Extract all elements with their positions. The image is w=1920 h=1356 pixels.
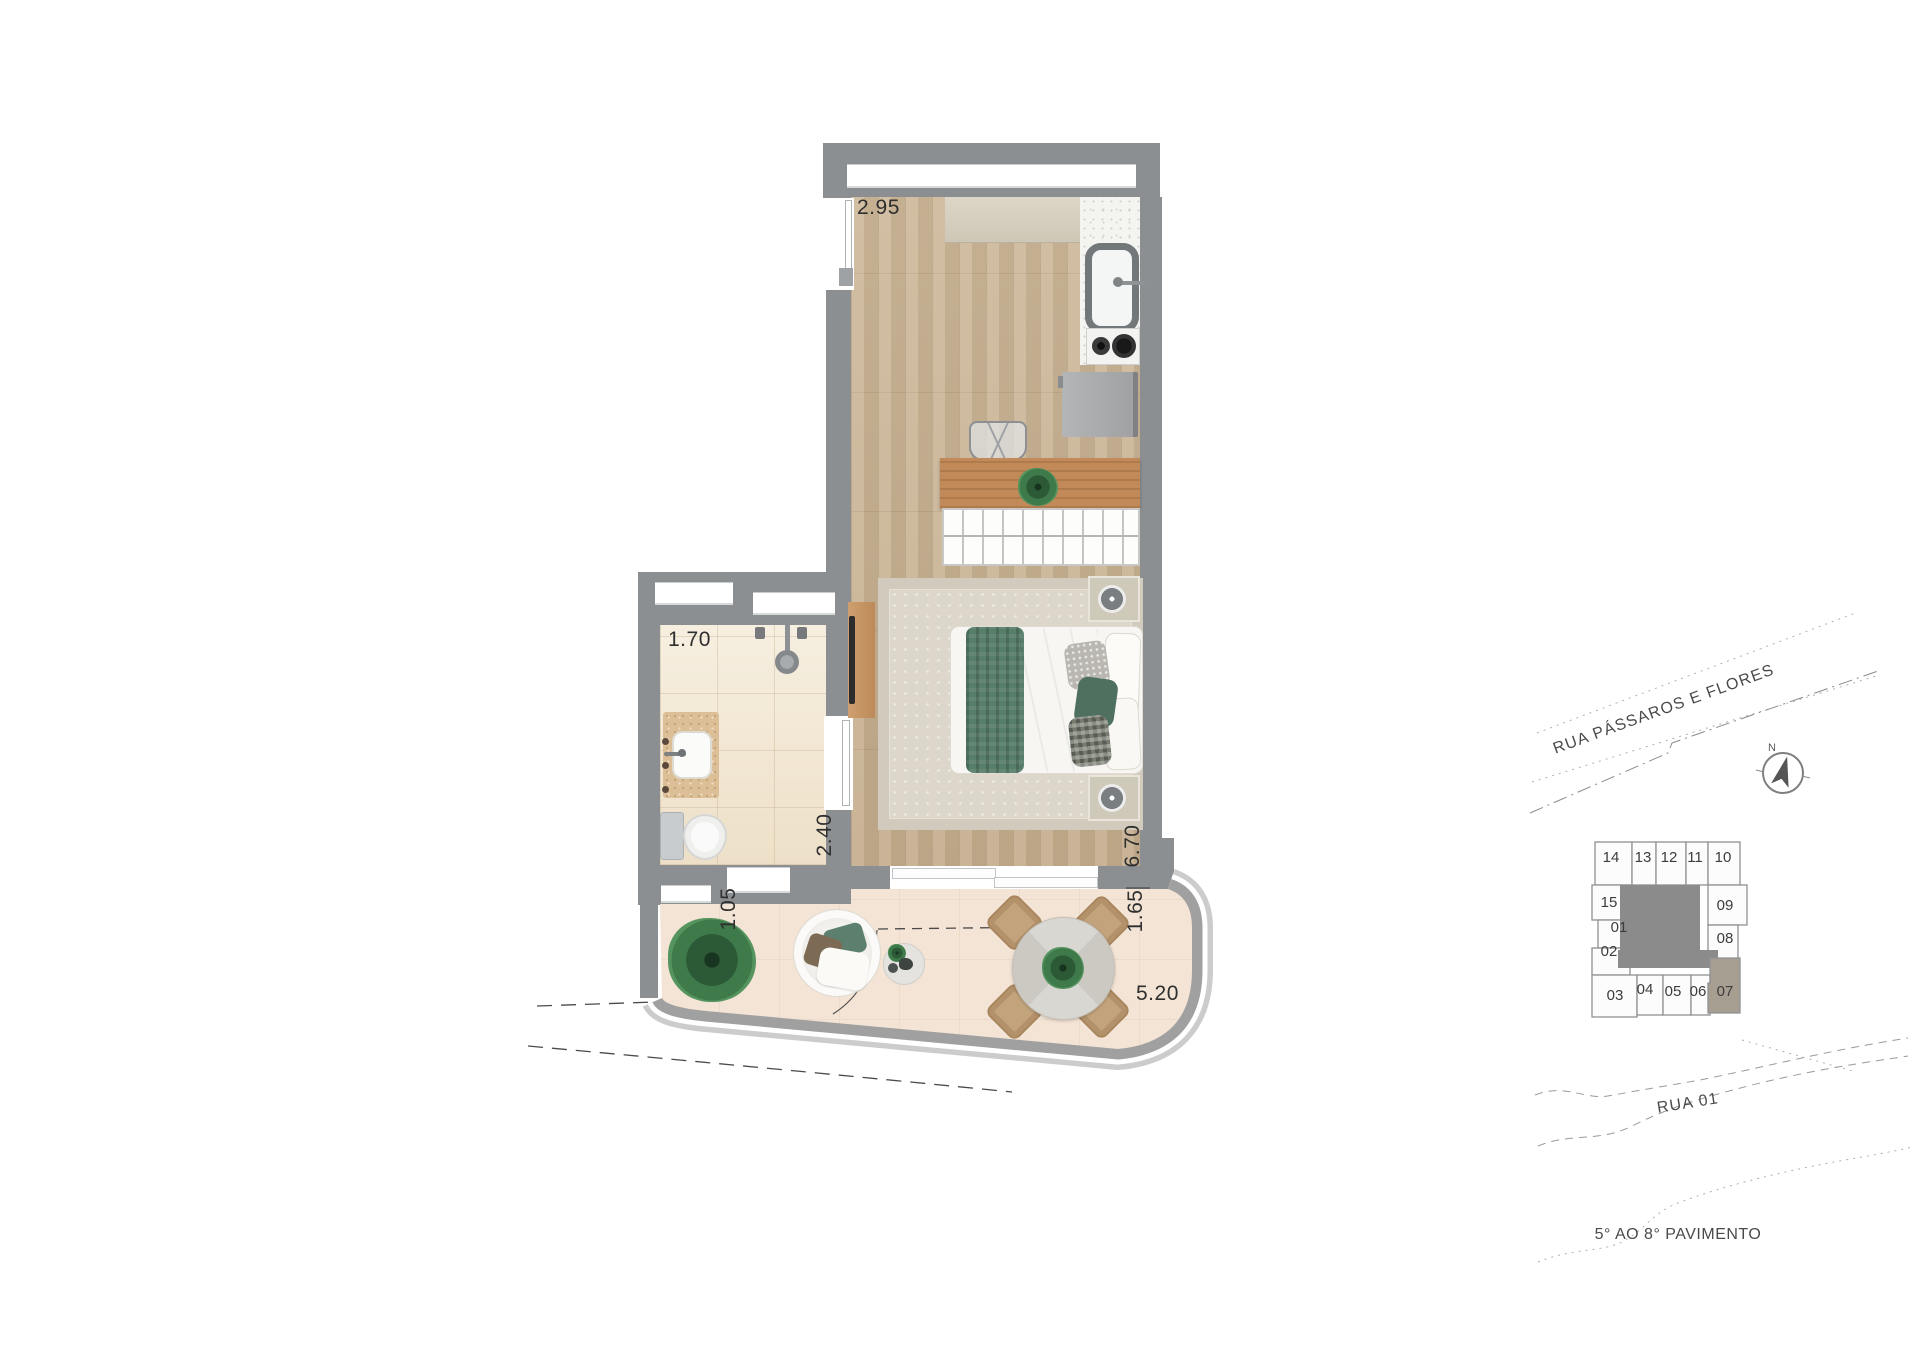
bed-green-throw bbox=[966, 627, 1024, 773]
balcony-slider-pane-1 bbox=[892, 868, 996, 879]
wall-left-mid bbox=[826, 288, 851, 575]
dim-balcony-depth-right: 1.65 bbox=[1125, 884, 1147, 938]
lamp-bottom bbox=[1098, 784, 1126, 812]
keyplan-core bbox=[1620, 885, 1700, 953]
stove-burner-large bbox=[1112, 334, 1136, 358]
fridge-handle bbox=[1058, 376, 1063, 388]
keyplan-unit-13: 13 bbox=[1630, 849, 1656, 865]
desk-plant bbox=[1018, 468, 1058, 506]
tv-screen bbox=[849, 616, 855, 704]
north-arrow-icon bbox=[1771, 754, 1796, 787]
floor-range-label: 5° AO 8° PAVIMENTO bbox=[1588, 1226, 1768, 1244]
dim-balcony-width: 5.20 bbox=[1136, 982, 1179, 1006]
bath-faucet-knob bbox=[678, 749, 686, 757]
side-table-tray bbox=[899, 958, 913, 970]
street-name-upper: RUA PÁSSAROS E FLORES bbox=[1539, 657, 1789, 763]
wall-balcony-left bbox=[640, 890, 658, 998]
shower-control-left bbox=[755, 627, 765, 639]
keyplan-unit-06: 06 bbox=[1685, 983, 1711, 999]
window-bath-2 bbox=[753, 592, 835, 615]
keyplan-unit-09: 09 bbox=[1712, 897, 1738, 913]
bath-door-leaf bbox=[842, 720, 850, 806]
keyplan-unit-08: 08 bbox=[1712, 930, 1738, 946]
keyplan-unit-01: 01 bbox=[1606, 919, 1632, 935]
vanity-knob-1 bbox=[662, 738, 669, 745]
street-name-lower: RUA 01 bbox=[1647, 1089, 1729, 1119]
street-lines-upper bbox=[1530, 612, 1878, 813]
keyplan-core-band bbox=[1618, 950, 1718, 968]
keyplan-unit-14: 14 bbox=[1598, 849, 1624, 865]
keyplan-unit-15: 15 bbox=[1596, 894, 1622, 910]
dim-bathroom-width: 1.70 bbox=[668, 628, 711, 652]
keyplan-unit-10: 10 bbox=[1710, 849, 1736, 865]
shower-head bbox=[775, 650, 799, 674]
fridge bbox=[1062, 372, 1138, 437]
floorplan-canvas: 2.95 1.70 2.40 6.70 1.65 1.05 5.20 RUA P… bbox=[0, 0, 1920, 1356]
keyplan-unit-07: 07 bbox=[1712, 983, 1738, 999]
balcony-slider-pane-2 bbox=[994, 877, 1098, 888]
bed-pillow-checker bbox=[1067, 714, 1112, 768]
entry-door-hinge bbox=[839, 268, 853, 286]
keyplan-unit-12: 12 bbox=[1656, 849, 1682, 865]
vanity-knob-2 bbox=[662, 762, 669, 769]
stove-burner-small bbox=[1092, 337, 1110, 355]
compass bbox=[1756, 753, 1810, 793]
compass-north-label: N bbox=[1768, 742, 1776, 754]
toilet-tank bbox=[660, 812, 684, 860]
window-top-strip bbox=[847, 164, 1136, 188]
desk-chair bbox=[969, 421, 1027, 461]
shower-control-right bbox=[797, 627, 807, 639]
keyplan-unit-05: 05 bbox=[1660, 983, 1686, 999]
kitchen-sink bbox=[1085, 243, 1139, 333]
keyplan-unit-03: 03 bbox=[1602, 987, 1628, 1003]
entry-door-leaf bbox=[845, 200, 852, 272]
dining-table-plant bbox=[1042, 947, 1084, 989]
kitchen-upper-cabinet bbox=[945, 197, 1080, 243]
keyplan-unit-11: 11 bbox=[1682, 849, 1708, 865]
wall-right bbox=[1140, 197, 1162, 890]
window-bath-bottom bbox=[661, 885, 711, 903]
dim-room-depth: 6.70 bbox=[1122, 819, 1144, 873]
vanity-knob-3 bbox=[662, 786, 669, 793]
wardrobe-rack bbox=[942, 508, 1140, 566]
lamp-top bbox=[1098, 585, 1126, 613]
balcony-plant bbox=[668, 918, 756, 1002]
side-table-cup bbox=[888, 963, 898, 973]
dim-kitchen-width: 2.95 bbox=[857, 196, 900, 220]
keyplan-unit-02: 02 bbox=[1596, 943, 1622, 959]
window-bath-1 bbox=[655, 582, 733, 605]
keyplan-unit-04: 04 bbox=[1632, 981, 1658, 997]
dim-bathroom-depth: 2.40 bbox=[814, 808, 836, 862]
dim-balcony-depth-left: 1.05 bbox=[718, 882, 740, 936]
kitchen-faucet-knob bbox=[1113, 277, 1123, 287]
